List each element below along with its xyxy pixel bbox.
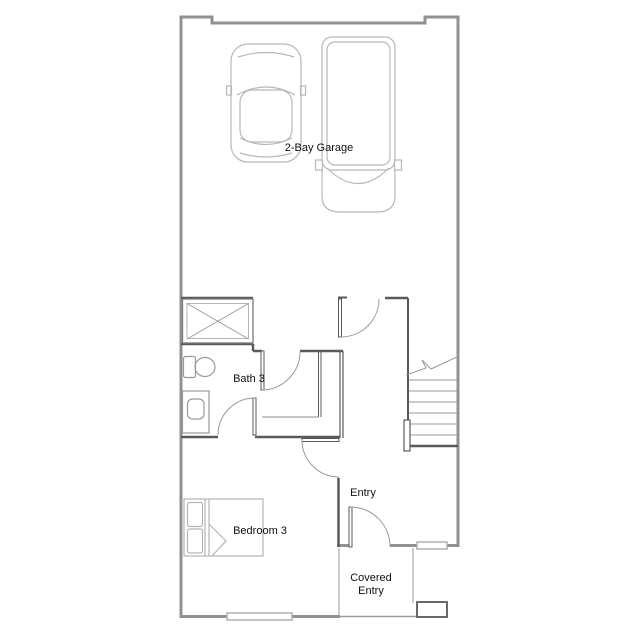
windows [227,542,447,620]
exterior-walls [181,17,458,618]
floor-plan-drawing: 2-Bay Garage Bath 3 Entry Bedroom 3 Cove… [0,0,639,639]
bath-door [261,351,300,390]
room-labels: 2-Bay Garage Bath 3 Entry Bedroom 3 Cove… [233,142,392,597]
shower-cross [187,304,249,340]
interior-walls [181,298,458,548]
garage-label: 2-Bay Garage [285,142,353,154]
bath-door-arc [263,352,301,391]
porch-column [417,602,447,617]
vanity-sink [183,391,210,433]
truck-cab-outline [322,170,395,212]
bedroom-door-leaf [302,439,339,442]
front-door-arc [351,507,391,547]
outer-wall-path [181,17,458,618]
front-door-leaf [349,507,352,547]
entry-window [417,542,447,549]
stair-newel-rail [404,420,410,451]
bath-bedroom-door-leaf [253,398,256,435]
toilet-bowl [195,358,215,377]
bedroom-label: Bedroom 3 [233,525,287,537]
car-hood-line [238,53,294,58]
shower [183,299,254,343]
truck [316,37,402,212]
bed-sheet-lines [205,499,209,556]
bath-label: Bath 3 [233,373,265,385]
entry-label: Entry [350,487,376,499]
garage-door [339,299,380,337]
stair-break-line [406,356,459,375]
bath-fixtures [183,299,254,433]
hall-west-wall [340,351,343,438]
truck-mirror-left [316,160,323,170]
bedroom-door [302,439,339,478]
front-door [349,507,390,547]
bedroom-window [227,613,292,620]
truck-mirror-right [395,160,402,170]
bed-pillow-1 [188,503,203,527]
toilet-tank [184,357,196,378]
stair-treads [409,380,457,435]
bath-chase-wall [319,351,322,417]
covered-entry-label-line1: Covered [350,572,392,584]
bed-fold [209,524,226,556]
covered-entry-label-line2: Entry [358,585,384,597]
vanity-counter [183,391,210,433]
garage-door-arc [341,299,379,337]
toilet [184,357,216,378]
car-windshield [237,87,295,95]
bed-pillow-2 [188,529,203,553]
floor-plan: 2-Bay Garage Bath 3 Entry Bedroom 3 Cove… [0,0,639,639]
garage-door-leaf [339,299,342,337]
bath-bedroom-door [218,398,256,435]
staircase [404,356,459,451]
bath-bedroom-door-arc [218,398,255,435]
sink-basin [188,399,205,419]
bath-north-wall [181,344,343,351]
bedroom-door-arc [302,440,339,477]
car-roof [240,90,292,142]
